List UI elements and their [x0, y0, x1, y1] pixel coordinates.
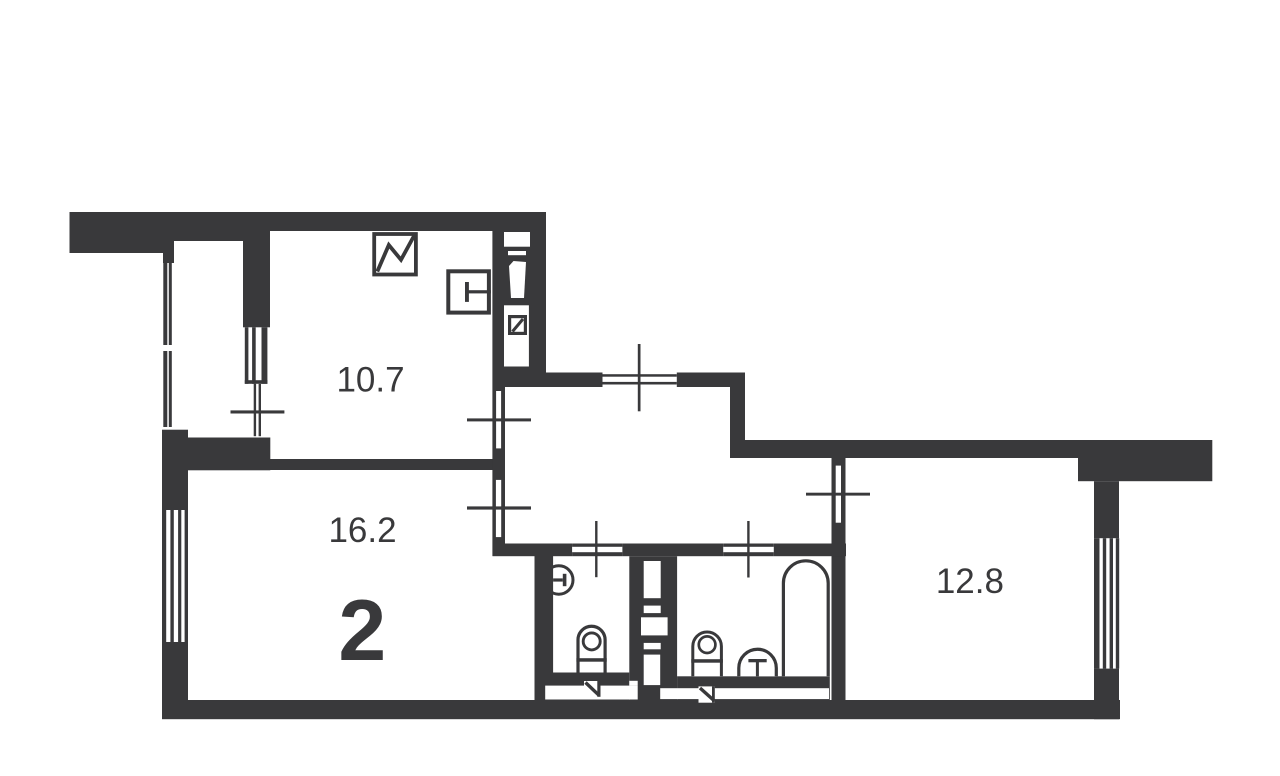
svg-text:16.2: 16.2 [328, 511, 396, 550]
svg-text:2: 2 [338, 583, 386, 679]
svg-text:12.8: 12.8 [936, 562, 1004, 601]
svg-text:10.7: 10.7 [336, 361, 404, 400]
